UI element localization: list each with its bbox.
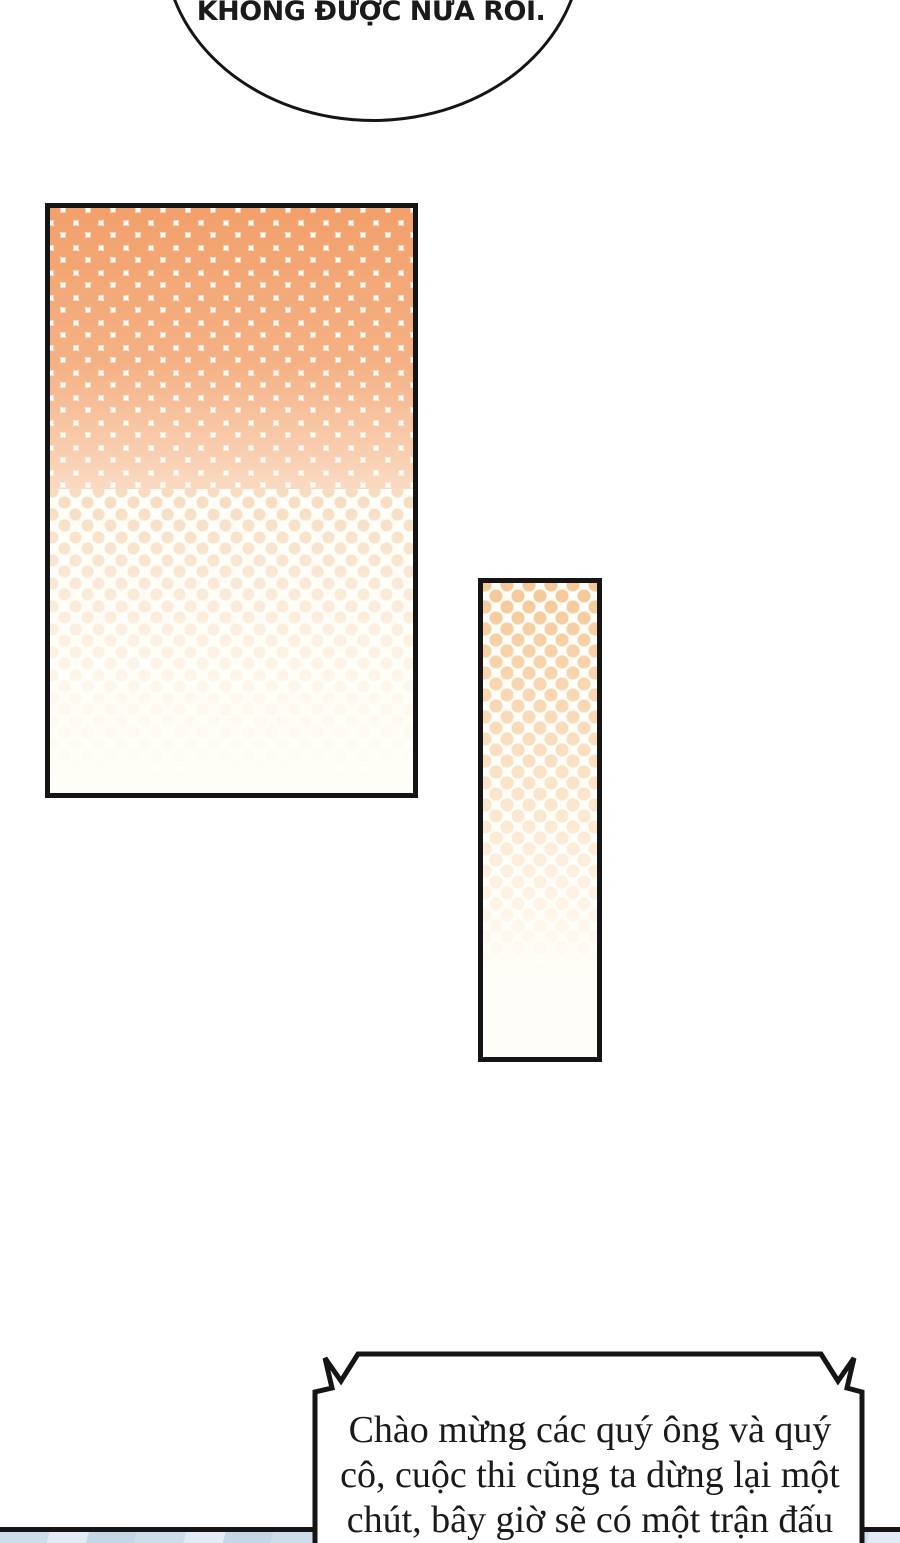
comic-page: KHÔNG ĐƯỢC NỮA RỒI. Chào mừng các quý ôn… [0, 0, 900, 1543]
announcement-line: cô, cuộc thi cũng ta dừng lại một [330, 1453, 850, 1498]
halftone-dots-small [483, 583, 597, 1057]
halftone-dots-fading [50, 489, 413, 793]
halftone-panel-large [45, 203, 418, 798]
halftone-dots-dense [50, 208, 413, 489]
announcement-text: Chào mừng các quý ông và quý cô, cuộc th… [330, 1408, 850, 1543]
halftone-panel-small [478, 578, 602, 1062]
speech-bubble-text: KHÔNG ĐƯỢC NỮA RỒI. [150, 0, 592, 27]
announcement-line: chút, bây giờ sẽ có một trận đấu [330, 1498, 850, 1543]
announcement-line: Chào mừng các quý ông và quý [330, 1408, 850, 1453]
